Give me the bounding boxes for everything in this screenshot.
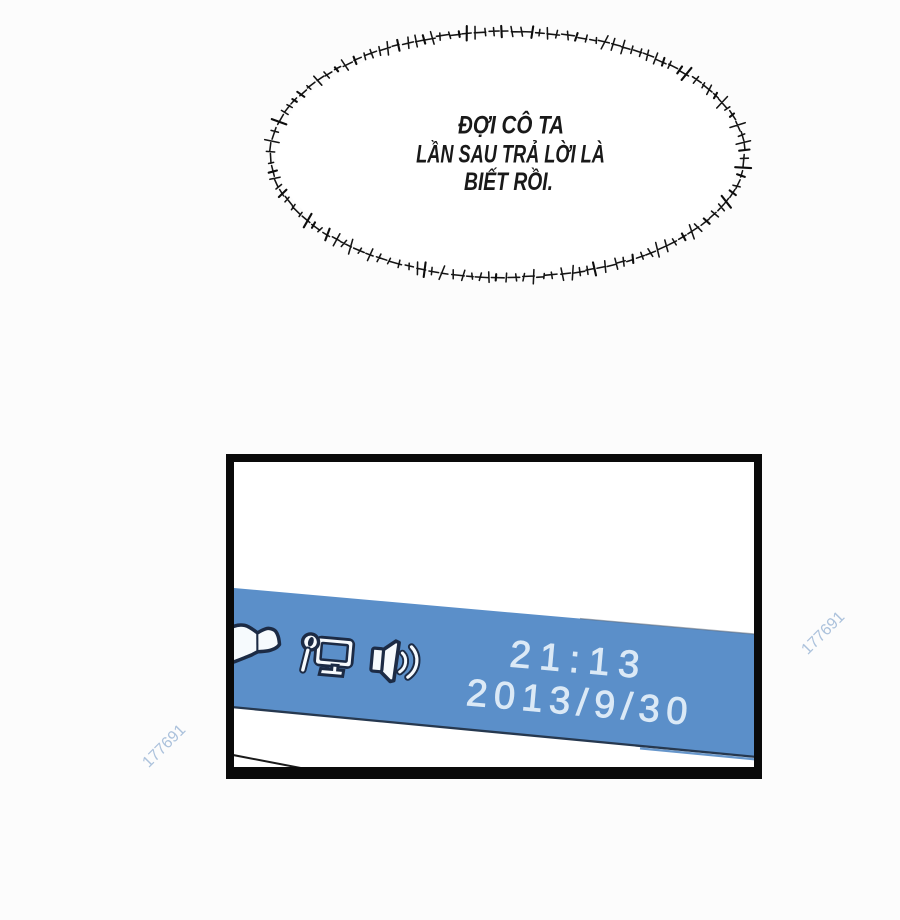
svg-text:BIẾT RỒI.: BIẾT RỒI. — [464, 168, 553, 196]
svg-text:ĐỢI CÔ TA: ĐỢI CÔ TA — [458, 111, 564, 139]
svg-text:LẦN SAU TRẢ LỜI LÀ: LẦN SAU TRẢ LỜI LÀ — [416, 140, 605, 169]
